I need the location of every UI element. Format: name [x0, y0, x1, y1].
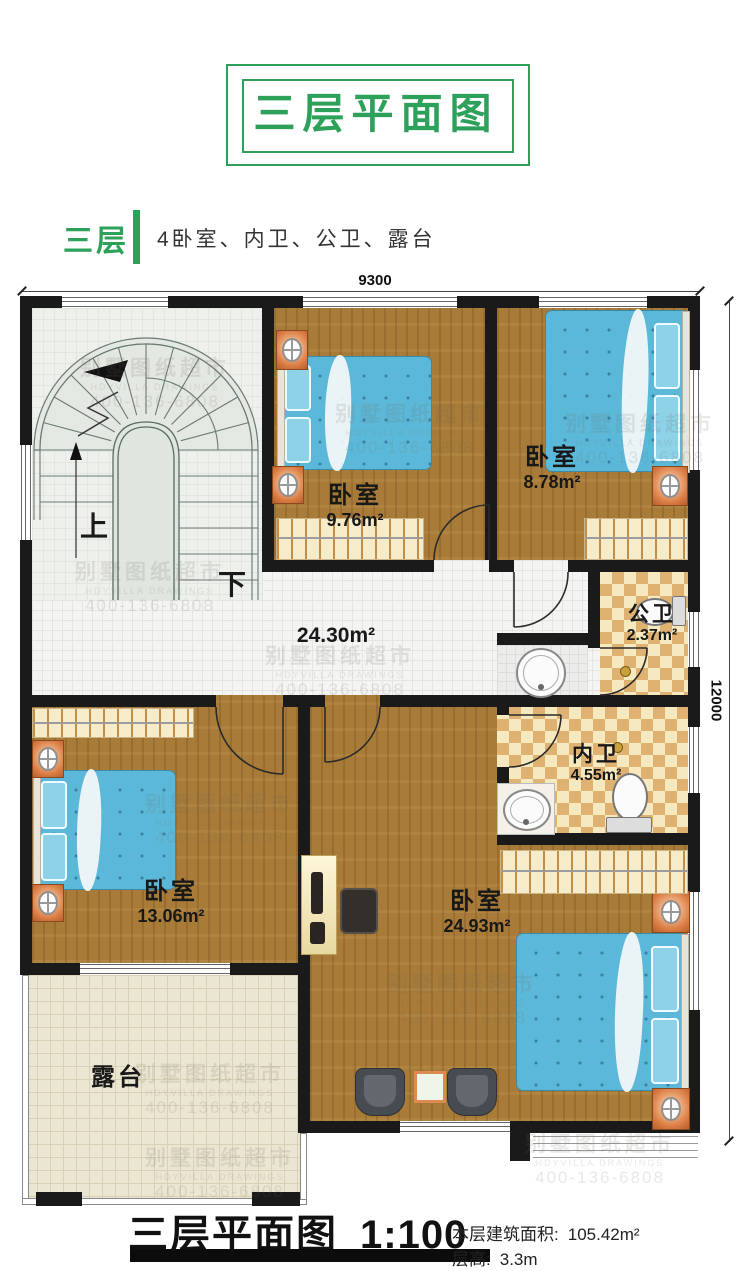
room-label-bedroom-top-right: 卧室 8.78m²: [492, 444, 612, 492]
pillow: [41, 781, 67, 829]
window: [80, 963, 230, 975]
floor-drain: [620, 666, 631, 677]
pillow: [654, 323, 680, 389]
decor-item: [310, 922, 325, 944]
terrace-rail: [22, 975, 29, 1200]
wall: [485, 308, 497, 560]
wall: [497, 633, 600, 645]
nightstand-lamp: [38, 891, 58, 915]
bed-headboard: [681, 934, 689, 1092]
bed: [34, 770, 176, 890]
floor-tag-bar: [133, 210, 140, 264]
bed-headboard: [682, 311, 690, 473]
chair-seat: [364, 1075, 396, 1107]
dimension-line-right: [729, 302, 730, 1142]
chair-seat: [456, 1075, 488, 1107]
room-label-hallway: 24.30m²: [256, 624, 416, 648]
side-table: [414, 1071, 446, 1103]
terrace-post: [36, 1192, 82, 1206]
eave-lines: [533, 1136, 698, 1162]
tap: [538, 684, 544, 690]
bed-headboard: [33, 771, 41, 891]
nightstand: [652, 466, 688, 506]
terrace-rail: [300, 1133, 307, 1200]
nightstand-lamp: [282, 338, 302, 362]
wall: [262, 560, 434, 572]
bed-headboard: [277, 357, 285, 471]
wall: [497, 707, 509, 715]
room-label-bedroom-left: 卧室 13.06m²: [101, 878, 241, 926]
chair: [355, 1068, 405, 1116]
room-label-bedroom-top-mid: 卧室 9.76m²: [285, 482, 425, 530]
nightstand: [652, 1088, 690, 1130]
footer-underline-bar: [130, 1249, 490, 1262]
footer-height-info: 层高:3.3m: [452, 1245, 538, 1270]
blanket: [322, 354, 354, 471]
window: [62, 296, 168, 308]
floor-plan-page: 三层平面图 三层 4卧室、内卫、公卫、露台 9300 12000: [0, 0, 750, 1271]
dimension-top-value: 9300: [340, 272, 410, 289]
nightstand: [276, 330, 308, 370]
window: [539, 296, 647, 308]
blanket: [618, 308, 653, 473]
nightstand-lamp: [661, 900, 681, 924]
pillow: [285, 365, 311, 411]
window: [20, 445, 32, 540]
staircase-drawing: 上 下: [32, 308, 262, 600]
pillow: [41, 833, 67, 881]
room-label-inner-bath: 内卫 4.55m²: [536, 743, 656, 786]
stairs-down-label: 下: [218, 569, 246, 600]
pillow: [651, 1018, 679, 1084]
wall-pier: [510, 1121, 530, 1161]
window: [400, 1121, 510, 1133]
wall: [497, 560, 514, 572]
floor-tag: 三层: [63, 216, 129, 260]
nightstand-lamp: [661, 1097, 681, 1121]
window: [688, 727, 700, 793]
washbasin: [516, 648, 566, 698]
footer-area-info: 本层建筑面积:105.42m²: [452, 1220, 640, 1245]
room-label-public-bath: 公卫 2.37m²: [602, 603, 702, 646]
dimension-line-top: [22, 291, 700, 292]
nightstand: [652, 891, 690, 933]
wall: [568, 560, 700, 572]
pillow: [651, 946, 679, 1012]
blanket: [611, 931, 647, 1092]
nightstand: [32, 884, 64, 922]
stairs-up-label: 上: [80, 511, 108, 542]
wall: [283, 695, 325, 707]
floor-description: 4卧室、内卫、公卫、露台: [157, 223, 436, 253]
pillow: [285, 417, 311, 463]
wall: [489, 560, 497, 572]
dimension-right-value: 12000: [708, 671, 725, 731]
nightstand-lamp: [38, 747, 58, 771]
chair: [447, 1068, 497, 1116]
wall: [20, 296, 32, 975]
wall: [20, 695, 216, 707]
page-title: 三层平面图: [242, 79, 510, 149]
bed: [516, 933, 688, 1091]
pillow: [654, 395, 680, 461]
room-label-terrace: 露台: [58, 1064, 178, 1092]
window: [303, 296, 457, 308]
toilet-tank: [606, 817, 652, 833]
room-label-bedroom-master: 卧室 24.93m²: [407, 888, 547, 936]
wall: [262, 308, 274, 572]
wardrobe: [32, 708, 194, 738]
tap: [523, 819, 529, 825]
bed: [278, 356, 432, 470]
nightstand-lamp: [660, 474, 680, 498]
tv-console: [301, 855, 337, 955]
washbasin: [503, 789, 551, 831]
blanket: [74, 768, 104, 891]
tv: [340, 888, 378, 934]
wall: [230, 963, 310, 975]
decor-item: [311, 872, 323, 914]
nightstand: [32, 740, 64, 778]
wardrobe: [584, 518, 688, 560]
wall: [20, 963, 80, 975]
